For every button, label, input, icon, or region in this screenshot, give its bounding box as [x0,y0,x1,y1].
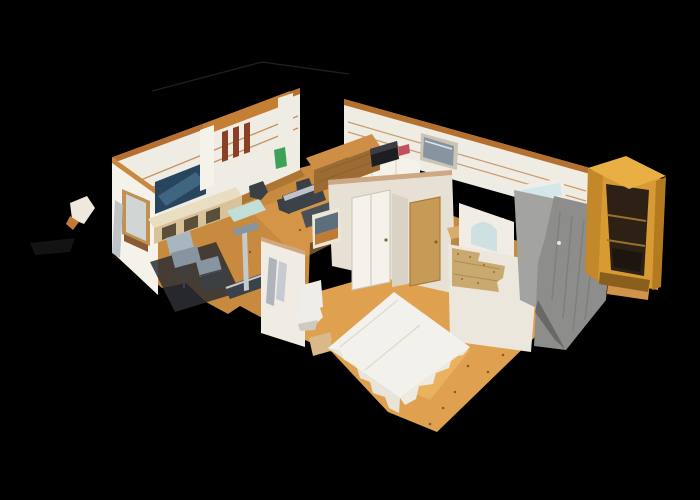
wardrobe-closet [585,156,666,292]
green-bottle [274,147,287,169]
loft-left-post [200,125,214,191]
shower-fixture [557,241,561,245]
white-door-knob [384,238,387,241]
screenshot-canvas [0,0,700,500]
wood-door-knob [434,240,437,243]
dollhouse-3d-view[interactable] [0,0,700,500]
between-door-panel [392,193,408,287]
